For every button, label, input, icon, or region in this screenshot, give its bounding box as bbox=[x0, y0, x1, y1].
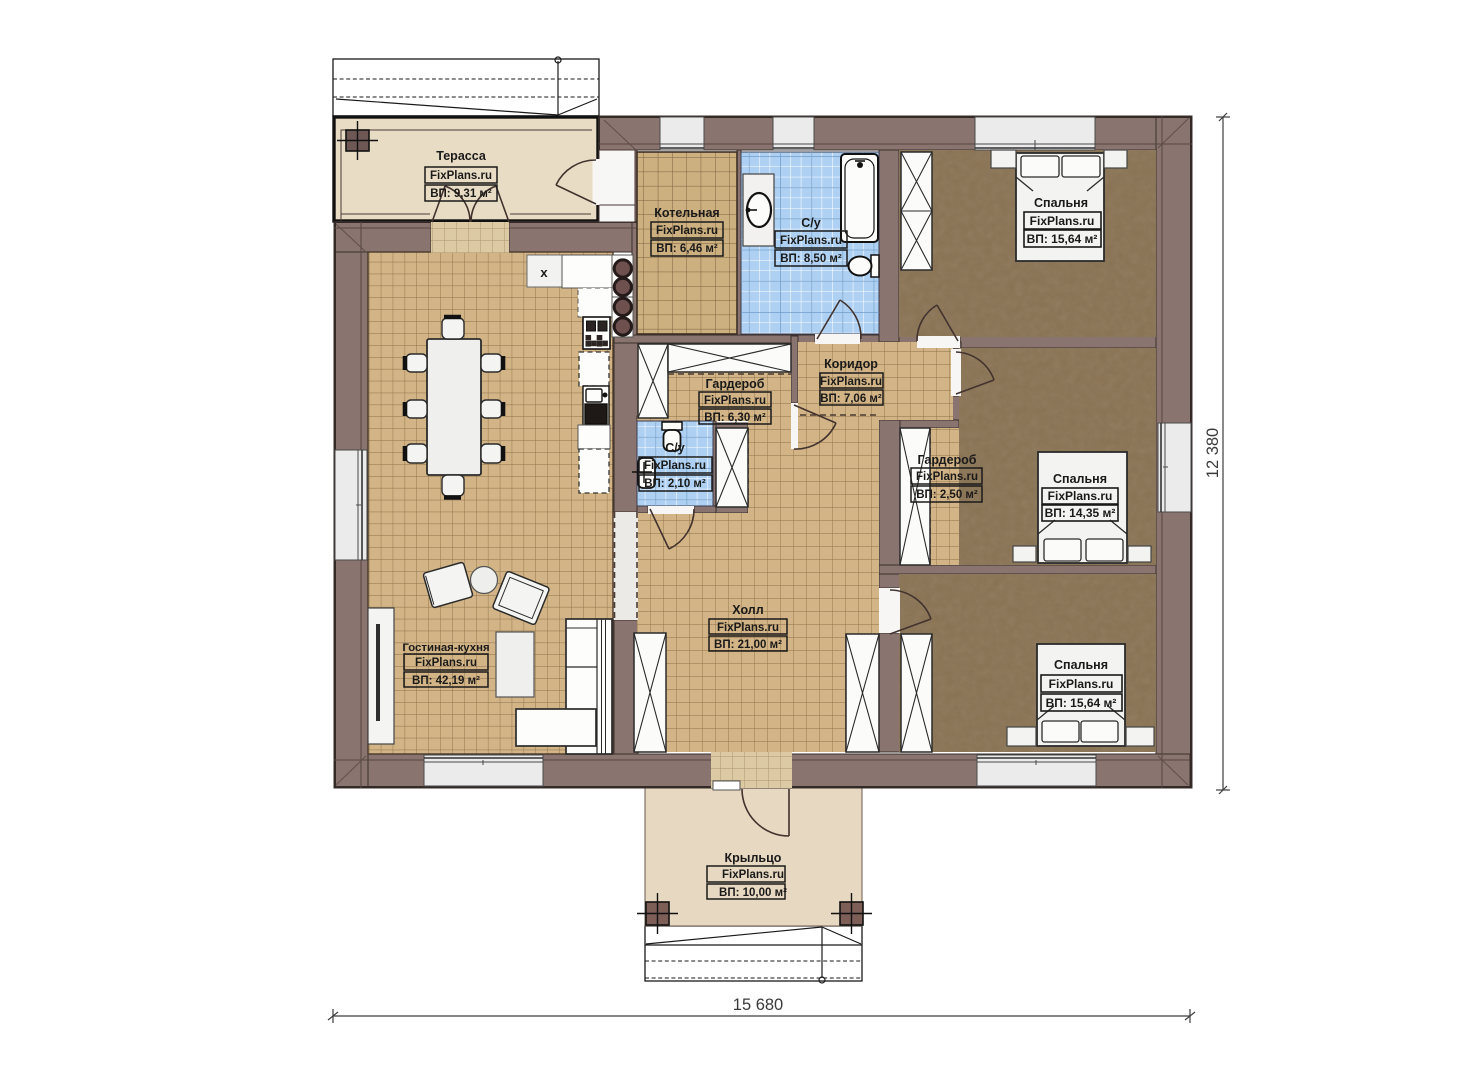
svg-text:FixPlans.ru: FixPlans.ru bbox=[820, 376, 882, 388]
svg-text:FixPlans.ru: FixPlans.ru bbox=[430, 170, 492, 182]
svg-text:ВП: 42,19 м²: ВП: 42,19 м² bbox=[412, 675, 480, 687]
svg-text:ВП: 7,06 м²: ВП: 7,06 м² bbox=[820, 393, 882, 405]
svg-text:ВП: 9,31 м²: ВП: 9,31 м² bbox=[430, 188, 492, 200]
svg-text:Холл: Холл bbox=[732, 603, 763, 617]
svg-text:ВП: 15,64 м²: ВП: 15,64 м² bbox=[1027, 232, 1098, 246]
svg-text:FixPlans.ru: FixPlans.ru bbox=[717, 622, 779, 634]
svg-text:FixPlans.ru: FixPlans.ru bbox=[415, 657, 477, 669]
svg-text:ВП: 2,50 м²: ВП: 2,50 м² bbox=[916, 489, 978, 501]
svg-text:ВП: 15,64 м²: ВП: 15,64 м² bbox=[1046, 696, 1117, 710]
svg-text:FixPlans.ru: FixPlans.ru bbox=[656, 225, 718, 237]
svg-text:Гостиная-кухня: Гостиная-кухня bbox=[402, 642, 489, 654]
svg-text:Спальня: Спальня bbox=[1034, 196, 1088, 210]
svg-text:Спальня: Спальня bbox=[1054, 658, 1108, 672]
svg-text:FixPlans.ru: FixPlans.ru bbox=[780, 235, 842, 247]
svg-text:ВП: 14,35 м²: ВП: 14,35 м² bbox=[1045, 506, 1116, 520]
svg-text:Терасса: Терасса bbox=[436, 149, 487, 163]
svg-text:15 680: 15 680 bbox=[733, 996, 783, 1014]
svg-text:FixPlans.ru: FixPlans.ru bbox=[644, 460, 706, 472]
svg-text:Гардероб: Гардероб bbox=[705, 377, 764, 391]
svg-text:Коридор: Коридор bbox=[824, 357, 878, 371]
svg-text:FixPlans.ru: FixPlans.ru bbox=[1048, 489, 1113, 503]
svg-text:ВП: 21,00 м²: ВП: 21,00 м² bbox=[714, 639, 782, 651]
svg-text:Крыльцо: Крыльцо bbox=[725, 851, 782, 865]
svg-text:x: x bbox=[540, 265, 548, 280]
svg-text:FixPlans.ru: FixPlans.ru bbox=[722, 869, 784, 881]
svg-text:С/у: С/у bbox=[801, 216, 821, 230]
svg-text:Котельная: Котельная bbox=[654, 206, 719, 220]
svg-text:ВП: 10,00 м²: ВП: 10,00 м² bbox=[719, 887, 787, 899]
svg-text:Гардероб: Гардероб bbox=[917, 453, 976, 467]
svg-text:FixPlans.ru: FixPlans.ru bbox=[1030, 214, 1095, 228]
svg-text:Спальня: Спальня bbox=[1053, 472, 1107, 486]
svg-text:ВП: 8,50 м²: ВП: 8,50 м² bbox=[780, 253, 842, 265]
svg-text:ВП: 6,46 м²: ВП: 6,46 м² bbox=[656, 243, 718, 255]
svg-text:FixPlans.ru: FixPlans.ru bbox=[916, 471, 978, 483]
svg-text:ВП: 2,10 м²: ВП: 2,10 м² bbox=[644, 478, 706, 490]
svg-text:12 380: 12 380 bbox=[1204, 428, 1222, 478]
svg-text:FixPlans.ru: FixPlans.ru bbox=[1049, 677, 1114, 691]
svg-text:FixPlans.ru: FixPlans.ru bbox=[704, 395, 766, 407]
svg-text:С/у: С/у bbox=[665, 441, 685, 455]
svg-text:ВП: 6,30 м²: ВП: 6,30 м² bbox=[704, 412, 766, 424]
